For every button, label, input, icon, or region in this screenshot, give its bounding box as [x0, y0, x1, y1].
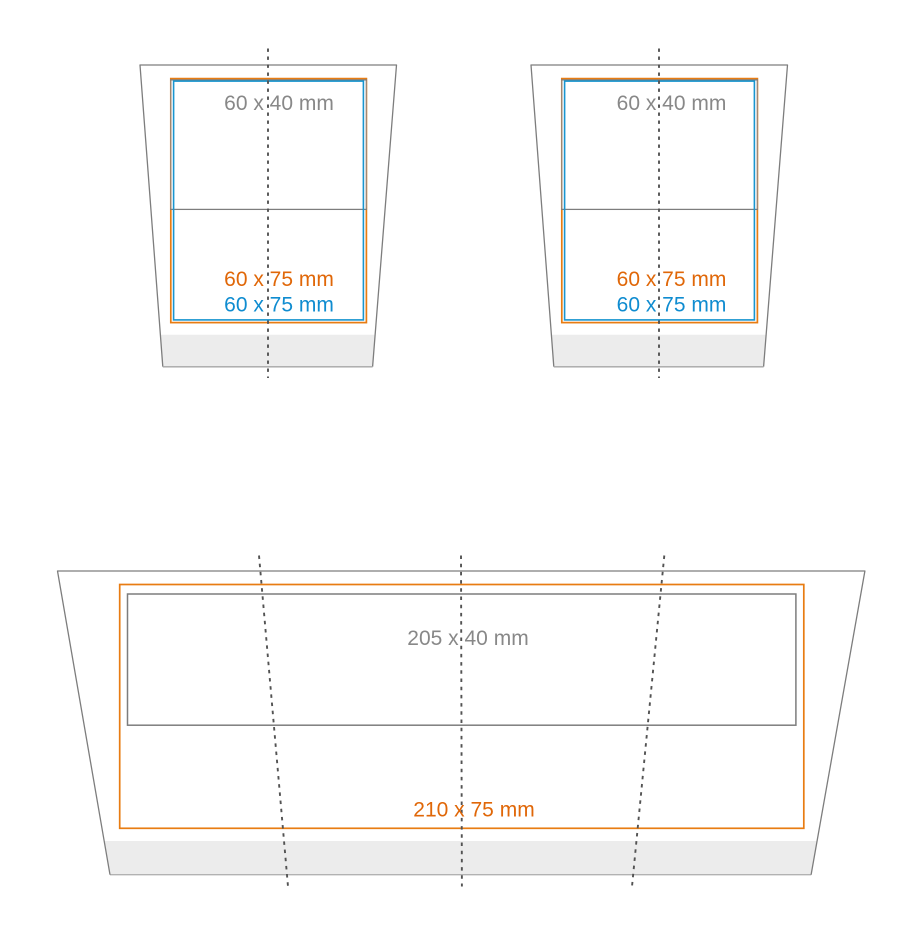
svg-text:60 x 75 mm: 60 x 75 mm: [224, 294, 334, 317]
svg-text:210 x 75 mm: 210 x 75 mm: [413, 798, 534, 821]
svg-text:60 x 40 mm: 60 x 40 mm: [617, 92, 727, 115]
svg-text:205 x 40 mm: 205 x 40 mm: [407, 627, 528, 650]
svg-text:60 x 75 mm: 60 x 75 mm: [617, 294, 727, 317]
svg-text:60 x 75 mm: 60 x 75 mm: [224, 268, 334, 291]
svg-text:60 x 75 mm: 60 x 75 mm: [617, 268, 727, 291]
svg-text:60 x 40 mm: 60 x 40 mm: [224, 92, 334, 115]
